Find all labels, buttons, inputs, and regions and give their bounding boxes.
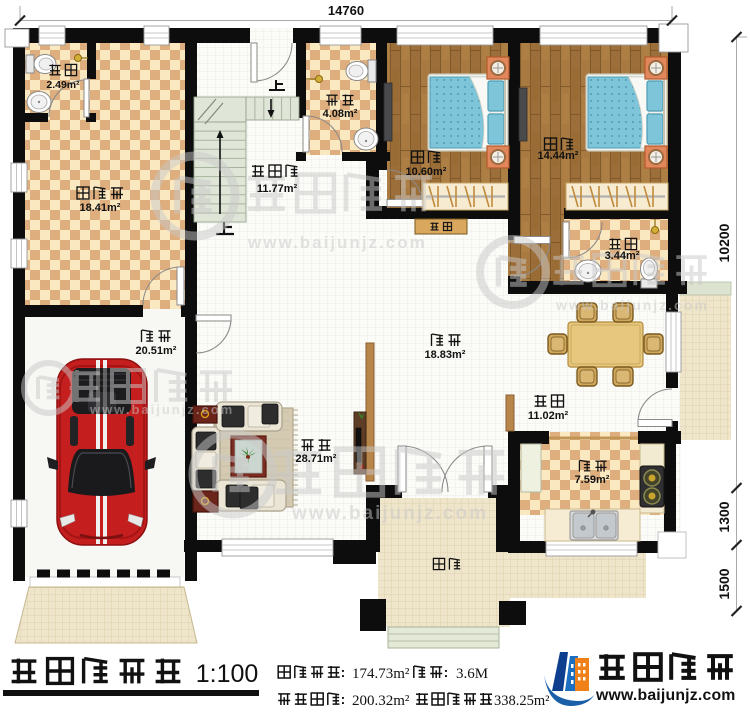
svg-text:www.baijunjz.com: www.baijunjz.com: [247, 233, 427, 252]
svg-text:2.49m²: 2.49m²: [46, 79, 80, 91]
svg-text:www.baijunjz.com: www.baijunjz.com: [291, 503, 488, 524]
svg-text:28.71m²: 28.71m²: [296, 453, 337, 465]
svg-text:338.25m²: 338.25m²: [494, 693, 550, 709]
svg-text:1500: 1500: [716, 568, 732, 599]
svg-text:1300: 1300: [716, 501, 732, 532]
svg-text:4.08m²: 4.08m²: [323, 108, 358, 120]
svg-text:3.44m²: 3.44m²: [605, 250, 640, 262]
svg-text:10.60m²: 10.60m²: [406, 166, 447, 178]
svg-text:www.baijunjz.com: www.baijunjz.com: [595, 687, 736, 704]
svg-text:14760: 14760: [328, 3, 364, 18]
svg-text:www.baijunjz.com: www.baijunjz.com: [89, 402, 234, 417]
svg-text::: :: [341, 664, 346, 680]
svg-text::: :: [444, 664, 449, 680]
svg-text:www.baijunjz.com: www.baijunjz.com: [555, 297, 709, 313]
svg-text:200.32m²: 200.32m²: [352, 693, 410, 709]
svg-text:18.41m²: 18.41m²: [80, 202, 121, 214]
svg-text::: :: [341, 691, 346, 707]
svg-text:174.73m²: 174.73m²: [352, 666, 410, 682]
svg-text:10200: 10200: [716, 223, 732, 262]
svg-text:7.59m²: 7.59m²: [575, 474, 610, 486]
svg-text:18.83m²: 18.83m²: [425, 349, 466, 361]
svg-text:11.02m²: 11.02m²: [528, 410, 569, 422]
svg-text::: :: [487, 691, 492, 707]
svg-text:14.44m²: 14.44m²: [538, 150, 579, 162]
svg-text:3.6M: 3.6M: [456, 666, 488, 682]
svg-text:11.77m²: 11.77m²: [257, 183, 298, 195]
svg-text:1:100: 1:100: [196, 660, 259, 688]
svg-text:20.51m²: 20.51m²: [136, 345, 177, 357]
